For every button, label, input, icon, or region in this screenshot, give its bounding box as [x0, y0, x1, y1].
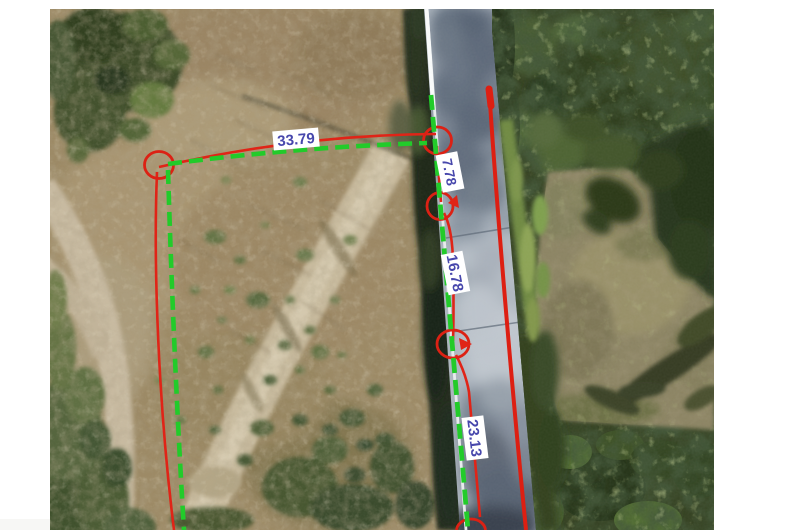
- svg-text:33.79: 33.79: [277, 130, 316, 150]
